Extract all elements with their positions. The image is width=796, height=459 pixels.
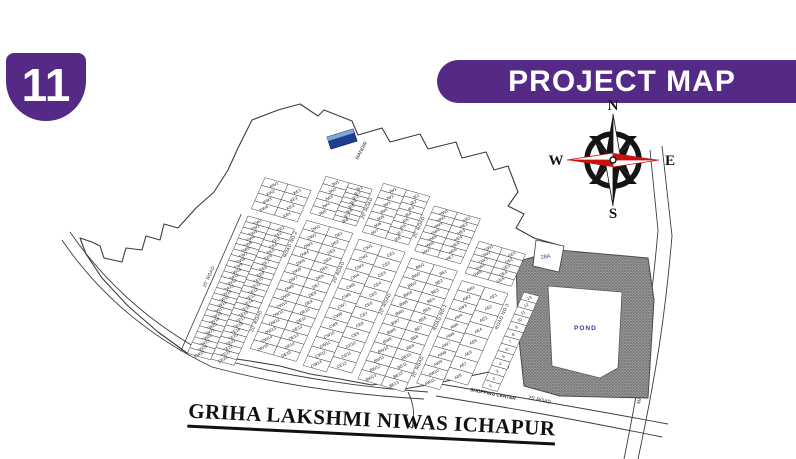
compass-east-label: E [665,153,675,169]
compass-rose: N S W E [549,98,676,222]
compass-west-label: W [549,153,564,169]
pond: POND [516,250,654,398]
project-map: SHOPPING CENTER 25' ROAD MAIN ROAD POND … [0,0,796,459]
pond-label: POND [574,325,597,332]
pond-water [548,286,622,378]
road-25-label: 25' ROAD [528,395,552,406]
plot-28a: 28A [533,240,564,272]
compass-south-label: S [609,206,617,222]
compass-north-label: N [608,98,619,114]
